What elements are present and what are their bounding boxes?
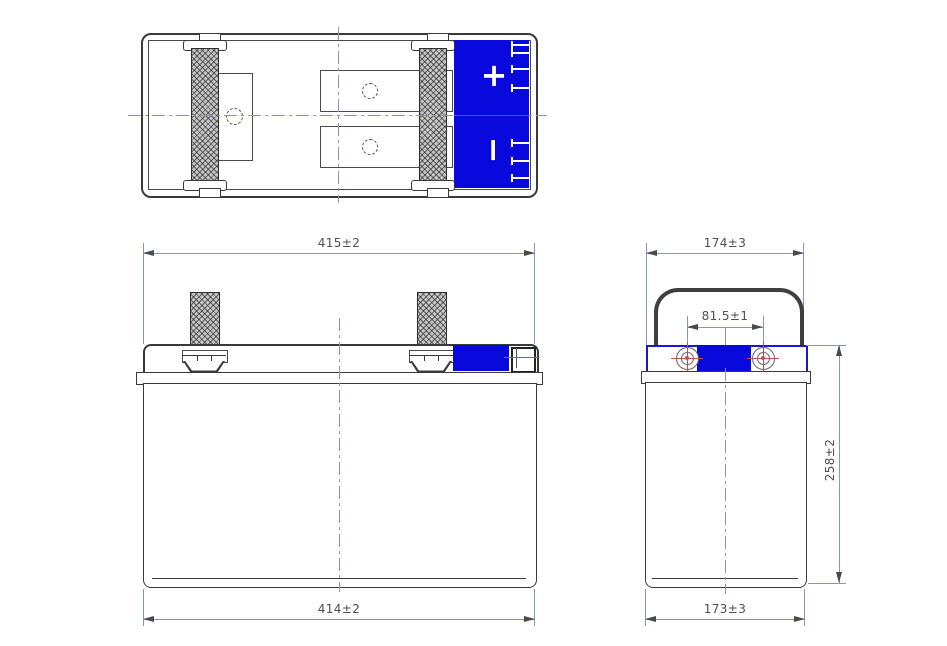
side-view: 174±3 81.5±1	[0, 0, 947, 646]
dim-line	[645, 619, 805, 620]
arrowhead-left	[646, 250, 657, 256]
dim-overall-depth: 174±3	[685, 236, 765, 250]
arrowhead-right	[752, 324, 763, 330]
dim-base-depth: 173±3	[685, 602, 765, 616]
side-body	[645, 382, 807, 588]
dim-line	[839, 345, 840, 583]
arrowhead-up	[836, 345, 842, 356]
extension-line	[646, 243, 647, 345]
center-tick	[725, 327, 726, 347]
arrowhead-left	[687, 324, 698, 330]
side-label-stripe	[697, 345, 751, 371]
arrowhead-left	[645, 616, 656, 622]
arrowhead-right	[794, 616, 805, 622]
dim-terminal-spacing: 81.5±1	[687, 309, 763, 323]
extension-line	[808, 583, 846, 584]
left-terminal-center-dot	[685, 356, 689, 360]
battery-drawing-canvas: + − 415±2	[0, 0, 947, 646]
dim-overall-height: 258±2	[823, 438, 837, 482]
arrowhead-down	[836, 572, 842, 583]
side-vertical-centerline	[725, 368, 726, 594]
dim-line	[646, 253, 804, 254]
right-terminal-center-dot	[761, 356, 765, 360]
